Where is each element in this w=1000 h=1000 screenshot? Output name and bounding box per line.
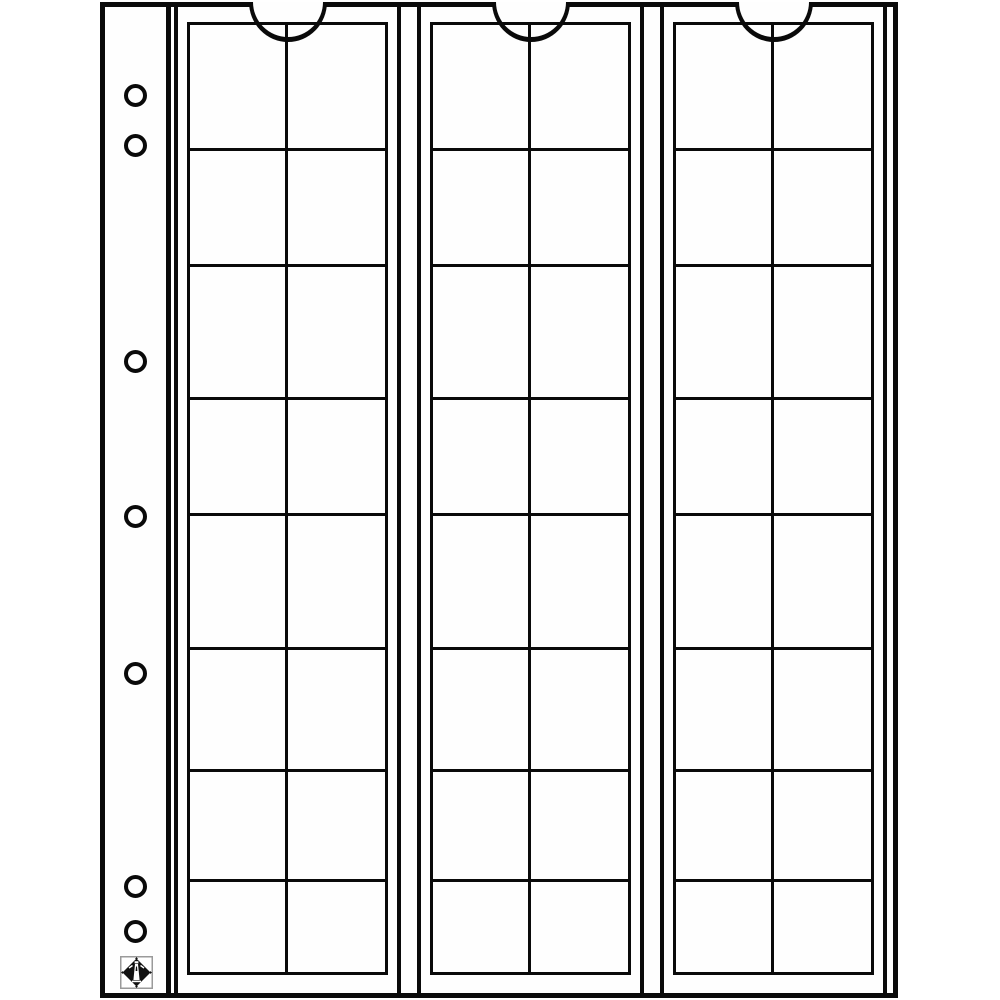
coin-pocket	[531, 650, 629, 772]
coin-pocket	[531, 25, 629, 151]
coin-pocket	[774, 882, 872, 972]
coin-pocket	[288, 772, 386, 882]
coin-pocket	[774, 650, 872, 772]
coin-pocket	[433, 400, 531, 516]
coin-pocket	[531, 772, 629, 882]
coin-pocket	[676, 267, 774, 400]
coin-pocket	[676, 400, 774, 516]
coin-pocket	[190, 882, 288, 972]
pocket-grid	[187, 22, 388, 975]
coin-pocket	[433, 650, 531, 772]
binder-hole	[124, 505, 147, 528]
binder-hole	[124, 134, 147, 157]
binder-hole	[124, 662, 147, 685]
coin-pocket	[676, 516, 774, 650]
binder-hole	[124, 875, 147, 898]
coin-pocket	[531, 516, 629, 650]
coin-pocket	[190, 516, 288, 650]
coin-strip-3	[660, 7, 887, 993]
coin-pocket	[433, 516, 531, 650]
binder-hole	[124, 84, 147, 107]
coin-pocket	[676, 882, 774, 972]
pocket-grid	[673, 22, 874, 975]
coin-pocket	[190, 267, 288, 400]
coin-pocket	[774, 772, 872, 882]
pocket-grid	[430, 22, 631, 975]
coin-pocket	[190, 400, 288, 516]
coin-pocket	[433, 882, 531, 972]
coin-pocket	[433, 772, 531, 882]
coin-pocket	[774, 25, 872, 151]
coin-pocket	[288, 882, 386, 972]
coin-pocket	[433, 151, 531, 267]
coin-pocket	[433, 267, 531, 400]
coin-pocket	[531, 400, 629, 516]
coin-pocket	[190, 772, 288, 882]
coin-pocket	[531, 151, 629, 267]
coin-pocket	[774, 151, 872, 267]
coin-pocket	[190, 151, 288, 267]
coin-pocket	[288, 25, 386, 151]
coin-pocket	[676, 151, 774, 267]
coin-pocket	[288, 400, 386, 516]
coin-pocket	[531, 267, 629, 400]
coin-pocket-sheet	[100, 2, 898, 998]
coin-strip-2	[417, 7, 644, 993]
binder-margin	[105, 7, 171, 993]
coin-pocket	[774, 267, 872, 400]
lighthouse-diamond-icon	[120, 956, 153, 989]
product-photo: { "page": { "background_color": "#ffffff…	[0, 0, 1000, 1000]
coin-pocket	[676, 772, 774, 882]
coin-pocket	[774, 400, 872, 516]
lighthouse-diamond-svg	[120, 956, 153, 989]
binder-hole	[124, 350, 147, 373]
coin-pocket	[433, 25, 531, 151]
coin-pocket	[288, 650, 386, 772]
coin-pocket	[774, 516, 872, 650]
coin-pocket	[288, 151, 386, 267]
coin-pocket	[288, 516, 386, 650]
coin-strip-1	[174, 7, 401, 993]
coin-pocket	[531, 882, 629, 972]
coin-pocket	[190, 650, 288, 772]
coin-pocket	[288, 267, 386, 400]
coin-pocket	[190, 25, 288, 151]
binder-hole	[124, 920, 147, 943]
coin-pocket	[676, 650, 774, 772]
coin-pocket	[676, 25, 774, 151]
